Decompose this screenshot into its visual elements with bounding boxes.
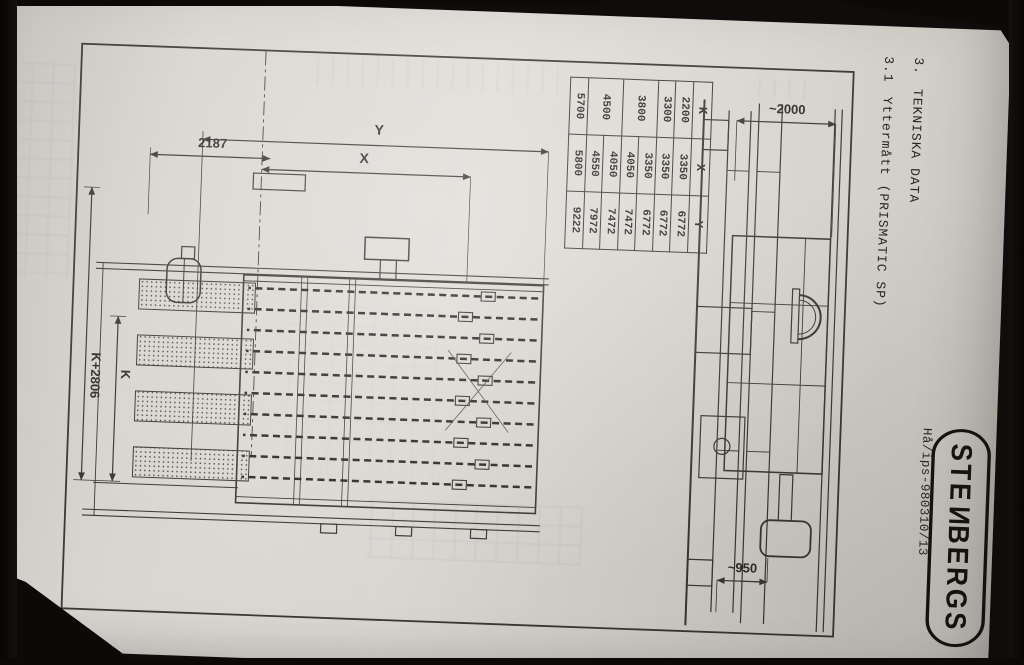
dim-line-x [262, 169, 471, 177]
label-x: X [359, 150, 370, 166]
rail-pad [470, 529, 486, 539]
manual-page: 3.TEKNISKA DATA 3.1Yttermått (PRISMATIC … [0, 0, 1005, 665]
label-k: K [118, 370, 133, 381]
shaft-circle [714, 438, 731, 455]
label-2000: ~2000 [769, 101, 806, 117]
rail-pad [320, 524, 336, 534]
dim-ext-x [467, 177, 471, 283]
hoop-arch [798, 295, 822, 340]
wheel-arm [778, 475, 793, 521]
plan-view [72, 45, 557, 541]
enclosure [724, 236, 831, 474]
top-rails [816, 109, 842, 632]
ground-line [685, 100, 704, 626]
dim-line-k [112, 316, 118, 481]
inner-rails [236, 281, 544, 508]
chain-end-caps [452, 291, 495, 490]
paper-sheet: 3.TEKNISKA DATA 3.1Yttermått (PRISMATIC … [0, 0, 1011, 665]
brush-bed-edge [93, 482, 238, 487]
conveyor-chains [241, 288, 538, 487]
tank-pin [181, 246, 194, 258]
photo-edge-top [0, 0, 600, 6]
brace-diagonals [445, 350, 511, 432]
dim-line-k2806 [81, 187, 92, 480]
drive-motor [365, 237, 410, 261]
label-y: Y [374, 121, 385, 137]
leg-right [687, 559, 713, 586]
dim-ext-y [544, 152, 549, 286]
side-elevation [685, 100, 842, 633]
label-2187: 2187 [198, 135, 227, 151]
dim-ext-k [73, 187, 131, 482]
dim-ext-2187 [148, 147, 150, 214]
photo-edge-left [0, 0, 17, 665]
label-950: ~950 [728, 560, 758, 576]
technical-drawing: Y X 2187 ~2000 ~950 K+2806 K [0, 0, 1005, 665]
brush-bar [132, 447, 249, 481]
dim-line-2000 [737, 121, 836, 125]
enclosure-details [724, 236, 831, 474]
rail-pad [395, 526, 411, 536]
document-photo: 3.TEKNISKA DATA 3.1Yttermått (PRISMATIC … [0, 0, 1024, 665]
dim-line-2187 [150, 154, 270, 158]
leg-left [703, 120, 729, 151]
photo-edge-bottom [0, 658, 1024, 665]
label-k2806: K+2806 [87, 352, 104, 398]
bed-bands [710, 102, 782, 624]
dim-line-y [203, 139, 549, 152]
motor-flange [380, 260, 397, 281]
photo-edge-right [1009, 0, 1024, 665]
arch-base [791, 289, 800, 343]
